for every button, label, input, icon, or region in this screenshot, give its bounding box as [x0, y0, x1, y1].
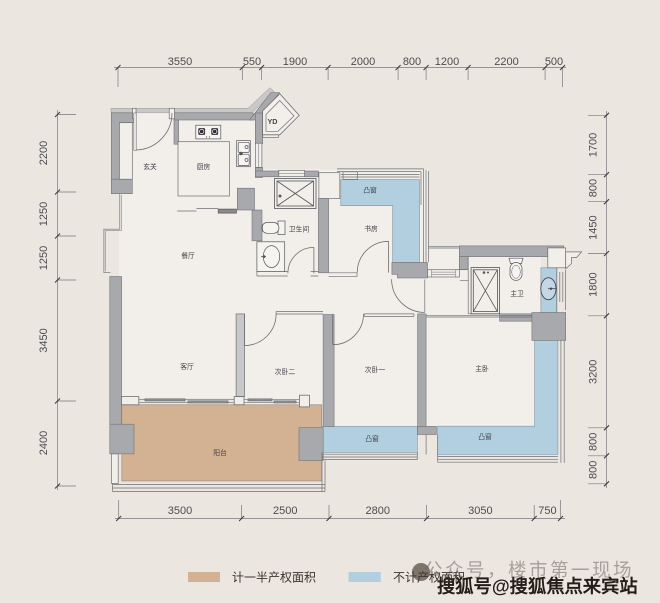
svg-text:550: 550 [243, 56, 261, 68]
svg-text:2400: 2400 [38, 431, 50, 455]
svg-text:2200: 2200 [38, 141, 50, 165]
svg-text:不计产权面积: 不计产权面积 [393, 571, 465, 585]
svg-text:3450: 3450 [38, 328, 50, 352]
svg-text:2000: 2000 [351, 56, 375, 68]
svg-text:1900: 1900 [283, 56, 307, 68]
svg-text:3050: 3050 [468, 505, 492, 517]
svg-text:主卫: 主卫 [510, 289, 524, 298]
svg-text:2200: 2200 [494, 56, 518, 68]
svg-text:1450: 1450 [588, 215, 600, 239]
svg-text:客厅: 客厅 [180, 362, 194, 371]
svg-text:2500: 2500 [273, 505, 297, 517]
svg-text:3500: 3500 [168, 505, 192, 517]
svg-text:1700: 1700 [588, 133, 600, 157]
svg-text:800: 800 [588, 461, 600, 479]
svg-text:3550: 3550 [168, 56, 192, 68]
svg-text:凸窗: 凸窗 [365, 434, 379, 443]
svg-text:YD: YD [268, 117, 278, 126]
svg-text:2800: 2800 [366, 505, 390, 517]
svg-text:厨房: 厨房 [197, 162, 211, 171]
svg-text:次卧一: 次卧一 [365, 365, 386, 374]
svg-text:餐厅: 餐厅 [181, 251, 195, 260]
svg-text:凸窗: 凸窗 [363, 186, 377, 195]
svg-text:搜狐号@搜狐焦点来宾站: 搜狐号@搜狐焦点来宾站 [437, 576, 638, 597]
svg-text:阳台: 阳台 [213, 448, 227, 457]
svg-text:卫生间: 卫生间 [289, 225, 310, 234]
svg-text:1250: 1250 [38, 246, 50, 270]
svg-text:计一半产权面积: 计一半产权面积 [232, 571, 316, 585]
svg-text:凸窗: 凸窗 [478, 432, 492, 441]
svg-text:1800: 1800 [588, 272, 600, 296]
svg-text:800: 800 [588, 433, 600, 451]
svg-text:1200: 1200 [435, 56, 459, 68]
svg-text:次卧二: 次卧二 [275, 367, 296, 376]
svg-text:800: 800 [588, 179, 600, 197]
svg-text:1250: 1250 [38, 202, 50, 226]
svg-text:800: 800 [403, 56, 421, 68]
svg-text:玄关: 玄关 [143, 162, 157, 171]
svg-text:3200: 3200 [588, 360, 600, 384]
svg-text:750: 750 [538, 505, 556, 517]
svg-text:主卧: 主卧 [475, 364, 489, 373]
svg-text:500: 500 [545, 56, 563, 68]
svg-text:书房: 书房 [364, 224, 378, 233]
